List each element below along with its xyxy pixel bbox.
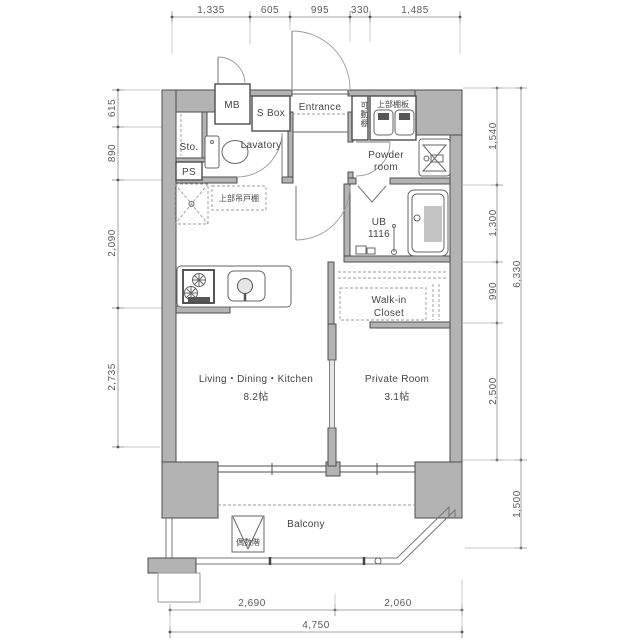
dim-label: 2,500: [488, 377, 499, 405]
powder-room-label2: room: [374, 162, 398, 173]
storage-label: Sto.: [180, 142, 199, 153]
wic-label2: Closet: [374, 308, 404, 319]
private-room-size: 3.1帖: [384, 390, 409, 403]
bathtub-icon: [408, 190, 448, 256]
dim-label: 2,735: [107, 363, 118, 391]
unit-bath-label: UB: [372, 217, 387, 228]
dim-label: 1,335: [197, 5, 225, 16]
dim-label: 890: [107, 144, 118, 162]
balcony-label: Balcony: [287, 519, 325, 530]
upper-cupboard-label: 上部吊戸棚: [219, 193, 259, 203]
dimension-top: 1,335 605 995 330 1,485: [171, 5, 462, 54]
dim-label: 330: [351, 5, 369, 16]
entrance-door-icon: [292, 31, 350, 94]
floor-plan: 1,335 605 995 330 1,485 615 890 2,090 2,…: [0, 0, 640, 640]
movable-shelf-label: 可動棚: [356, 101, 368, 141]
unit-bath-size: 1116: [368, 229, 390, 240]
window-ldk: [218, 463, 326, 475]
dim-label: 1,540: [488, 122, 499, 150]
floor-plan-drawing: 1,335 605 995 330 1,485 615 890 2,090 2,…: [0, 0, 640, 640]
balcony-partition: [148, 558, 200, 602]
drain-icon: [375, 558, 381, 564]
lavatory-label: Lavatory: [241, 140, 282, 151]
dim-label: 605: [261, 5, 279, 16]
powder-room-label: Powder: [368, 150, 404, 161]
dim-label: 995: [311, 5, 329, 16]
dimension-right: 1,540 1,300 990 2,500 6,330 1,500: [463, 87, 527, 550]
dim-label: 6,330: [512, 260, 523, 288]
dim-label: 2,690: [238, 598, 266, 609]
kitchen-counter: [177, 266, 291, 307]
dim-label: 4,750: [302, 620, 330, 631]
mb-label: MB: [224, 100, 240, 111]
ldk-door-icon: [296, 186, 350, 240]
ps-label: PS: [182, 167, 196, 178]
private-room-label: Private Room: [365, 374, 429, 385]
dim-label: 1,300: [488, 209, 499, 237]
window-private-room: [340, 463, 415, 475]
sliding-door: [330, 360, 335, 428]
ldk-label: Living・Dining・Kitchen: [199, 374, 313, 385]
bath-folding-door-icon: [358, 186, 386, 202]
dim-label: 2,090: [107, 229, 118, 257]
sink-icon: [228, 271, 265, 301]
dim-label: 990: [488, 282, 499, 300]
refrigerator-space-icon: [175, 184, 208, 224]
dimension-bottom: 2,690 2,060 4,750: [169, 580, 464, 638]
ldk-size: 8.2帖: [243, 390, 268, 403]
wic-label: Walk-in: [371, 295, 406, 306]
entrance-label: Entrance: [299, 102, 342, 113]
entrance-step-lines: [292, 114, 348, 132]
dim-label: 2,060: [384, 598, 412, 609]
column-bottom-left: [162, 462, 218, 518]
sbox-label: S Box: [257, 108, 285, 119]
dim-label: 1,500: [512, 490, 523, 518]
dim-label: 615: [107, 99, 118, 117]
mb-door-icon: [218, 57, 245, 84]
washing-machine-icon: [419, 139, 450, 176]
stove-icon: [183, 270, 214, 303]
evacuation-hatch-label: 偶数階: [236, 537, 260, 547]
upper-shelf-label: 上部棚板: [377, 99, 409, 109]
dim-label: 1,485: [401, 5, 429, 16]
